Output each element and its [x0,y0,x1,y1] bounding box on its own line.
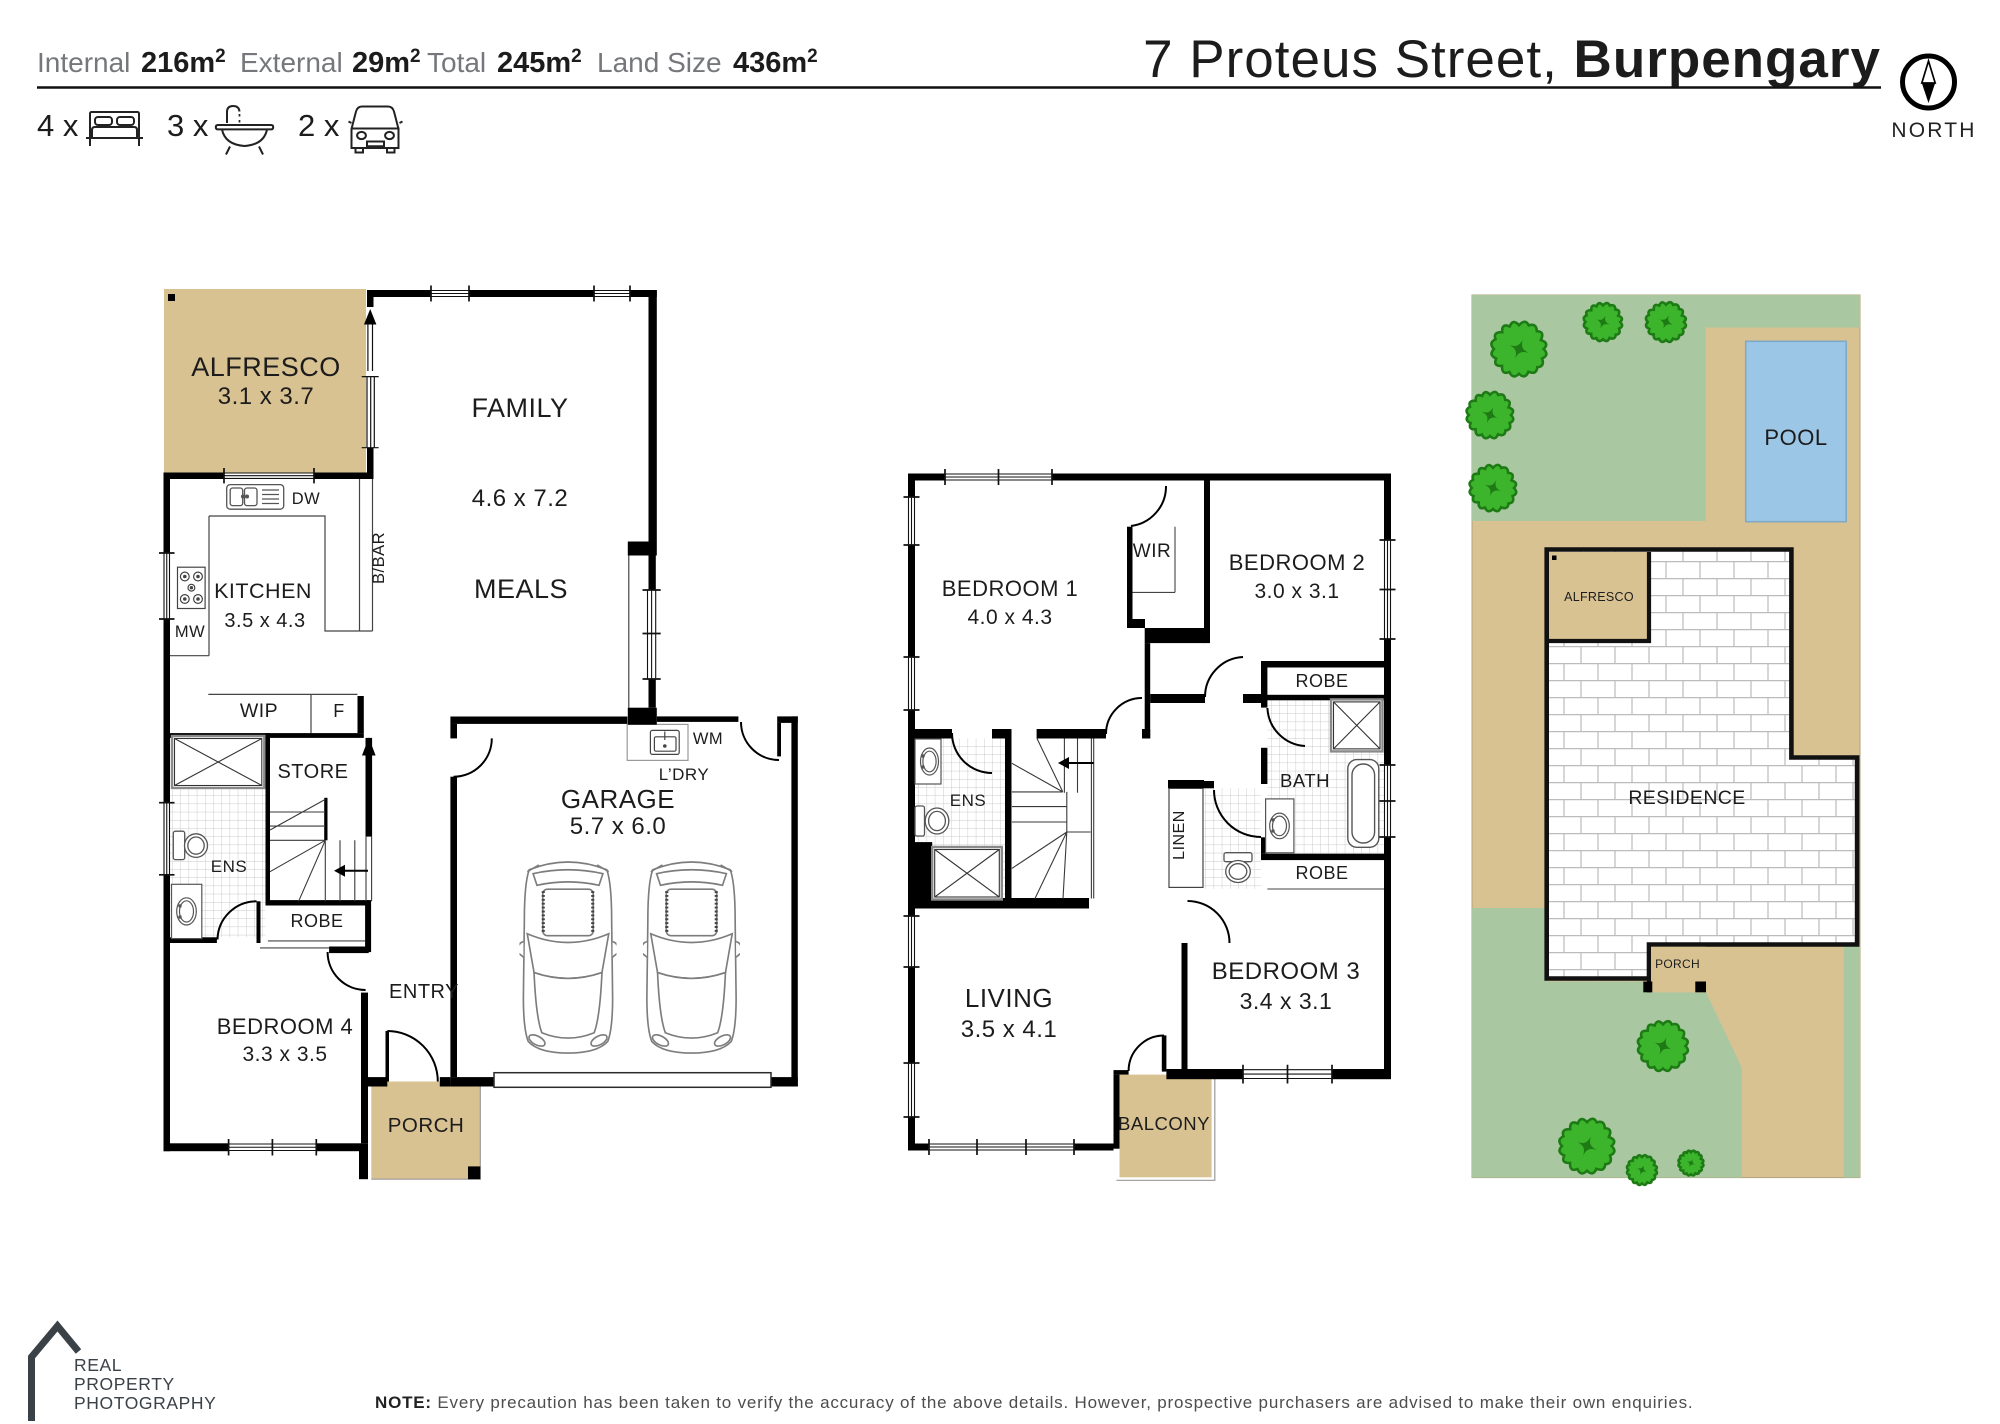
svg-text:3.3 x 3.5: 3.3 x 3.5 [242,1043,327,1066]
svg-text:Total: Total [427,47,486,78]
svg-text:WM: WM [693,730,723,748]
svg-text:MW: MW [175,623,205,641]
svg-text:ROBE: ROBE [1295,671,1348,691]
svg-text:3.0 x 3.1: 3.0 x 3.1 [1254,580,1339,603]
svg-text:ALFRESCO: ALFRESCO [1564,590,1634,604]
svg-text:PROPERTY: PROPERTY [74,1374,175,1394]
svg-text:4 x: 4 x [37,108,79,143]
svg-text:Land Size: Land Size [597,47,722,78]
svg-text:GARAGE: GARAGE [561,784,675,814]
svg-text:3.1 x 3.7: 3.1 x 3.7 [218,383,315,410]
svg-text:BEDROOM 4: BEDROOM 4 [217,1014,354,1039]
svg-text:29m2: 29m2 [352,46,421,79]
svg-text:4.0 x 4.3: 4.0 x 4.3 [967,606,1052,629]
svg-text:PHOTOGRAPHY: PHOTOGRAPHY [74,1393,216,1413]
svg-text:L’DRY: L’DRY [659,765,709,784]
svg-text:ROBE: ROBE [290,911,343,931]
svg-text:216m2: 216m2 [141,46,226,79]
svg-text:B/BAR: B/BAR [370,532,388,584]
svg-text:REAL: REAL [74,1355,122,1375]
svg-text:KITCHEN: KITCHEN [214,579,312,603]
svg-text:PORCH: PORCH [388,1114,465,1137]
svg-text:ROBE: ROBE [1295,863,1348,883]
svg-text:245m2: 245m2 [497,46,582,79]
svg-text:3 x: 3 x [167,108,209,143]
svg-text:RESIDENCE: RESIDENCE [1628,787,1745,809]
svg-text:3.5 x 4.1: 3.5 x 4.1 [961,1016,1058,1043]
svg-text:Internal: Internal [37,47,130,78]
svg-text:NORTH: NORTH [1891,119,1976,142]
svg-text:ALFRESCO: ALFRESCO [191,352,341,382]
svg-text:BEDROOM 3: BEDROOM 3 [1212,958,1361,985]
svg-text:5.7 x 6.0: 5.7 x 6.0 [570,813,667,840]
svg-text:2 x: 2 x [298,108,340,143]
svg-text:WIR: WIR [1133,541,1171,562]
svg-text:MEALS: MEALS [474,574,568,604]
svg-text:BALCONY: BALCONY [1118,1113,1210,1134]
svg-text:PORCH: PORCH [1655,957,1700,971]
svg-text:FAMILY: FAMILY [471,393,568,423]
svg-text:ENS: ENS [211,857,247,876]
svg-text:NOTE: Every precaution has bee: NOTE: Every precaution has been taken to… [375,1393,1693,1412]
svg-text:External: External [240,47,343,78]
svg-text:BEDROOM 1: BEDROOM 1 [942,576,1079,601]
svg-text:F: F [333,701,345,721]
svg-text:LIVING: LIVING [965,983,1053,1013]
svg-text:3.5 x 4.3: 3.5 x 4.3 [224,610,305,632]
svg-text:LINEN: LINEN [1171,810,1188,860]
svg-text:BEDROOM 2: BEDROOM 2 [1229,550,1366,575]
svg-text:POOL: POOL [1764,425,1827,450]
svg-text:BATH: BATH [1280,770,1330,791]
svg-text:WIP: WIP [240,700,278,722]
svg-text:ENS: ENS [950,791,986,810]
svg-text:3.4 x 3.1: 3.4 x 3.1 [1240,988,1333,1014]
svg-text:4.6 x 7.2: 4.6 x 7.2 [472,485,569,512]
svg-text:436m2: 436m2 [733,46,818,79]
svg-text:7 Proteus Street, Burpengary: 7 Proteus Street, Burpengary [1143,30,1881,89]
svg-text:STORE: STORE [277,761,348,783]
svg-text:ENTRY: ENTRY [389,981,459,1003]
svg-text:DW: DW [292,490,321,508]
